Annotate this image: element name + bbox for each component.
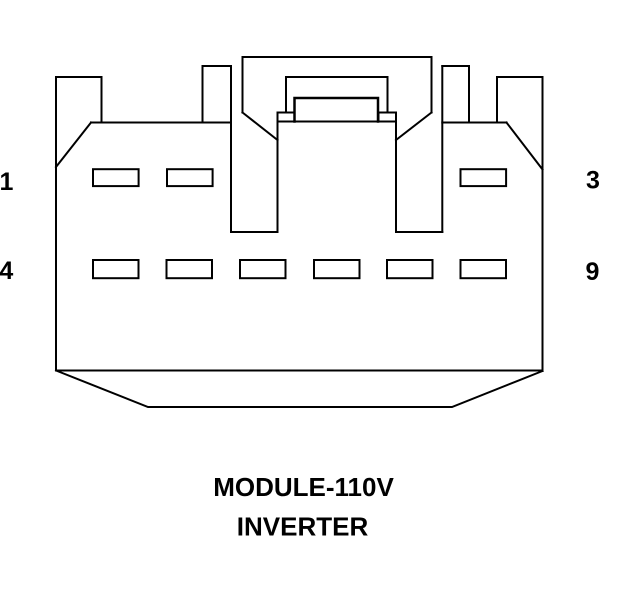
svg-text:9: 9: [586, 258, 600, 286]
svg-text:3: 3: [586, 167, 600, 195]
svg-text:4: 4: [0, 257, 13, 285]
svg-text:1: 1: [0, 168, 14, 196]
svg-text:MODULE-110V: MODULE-110V: [213, 472, 394, 502]
svg-text:INVERTER: INVERTER: [237, 512, 369, 542]
